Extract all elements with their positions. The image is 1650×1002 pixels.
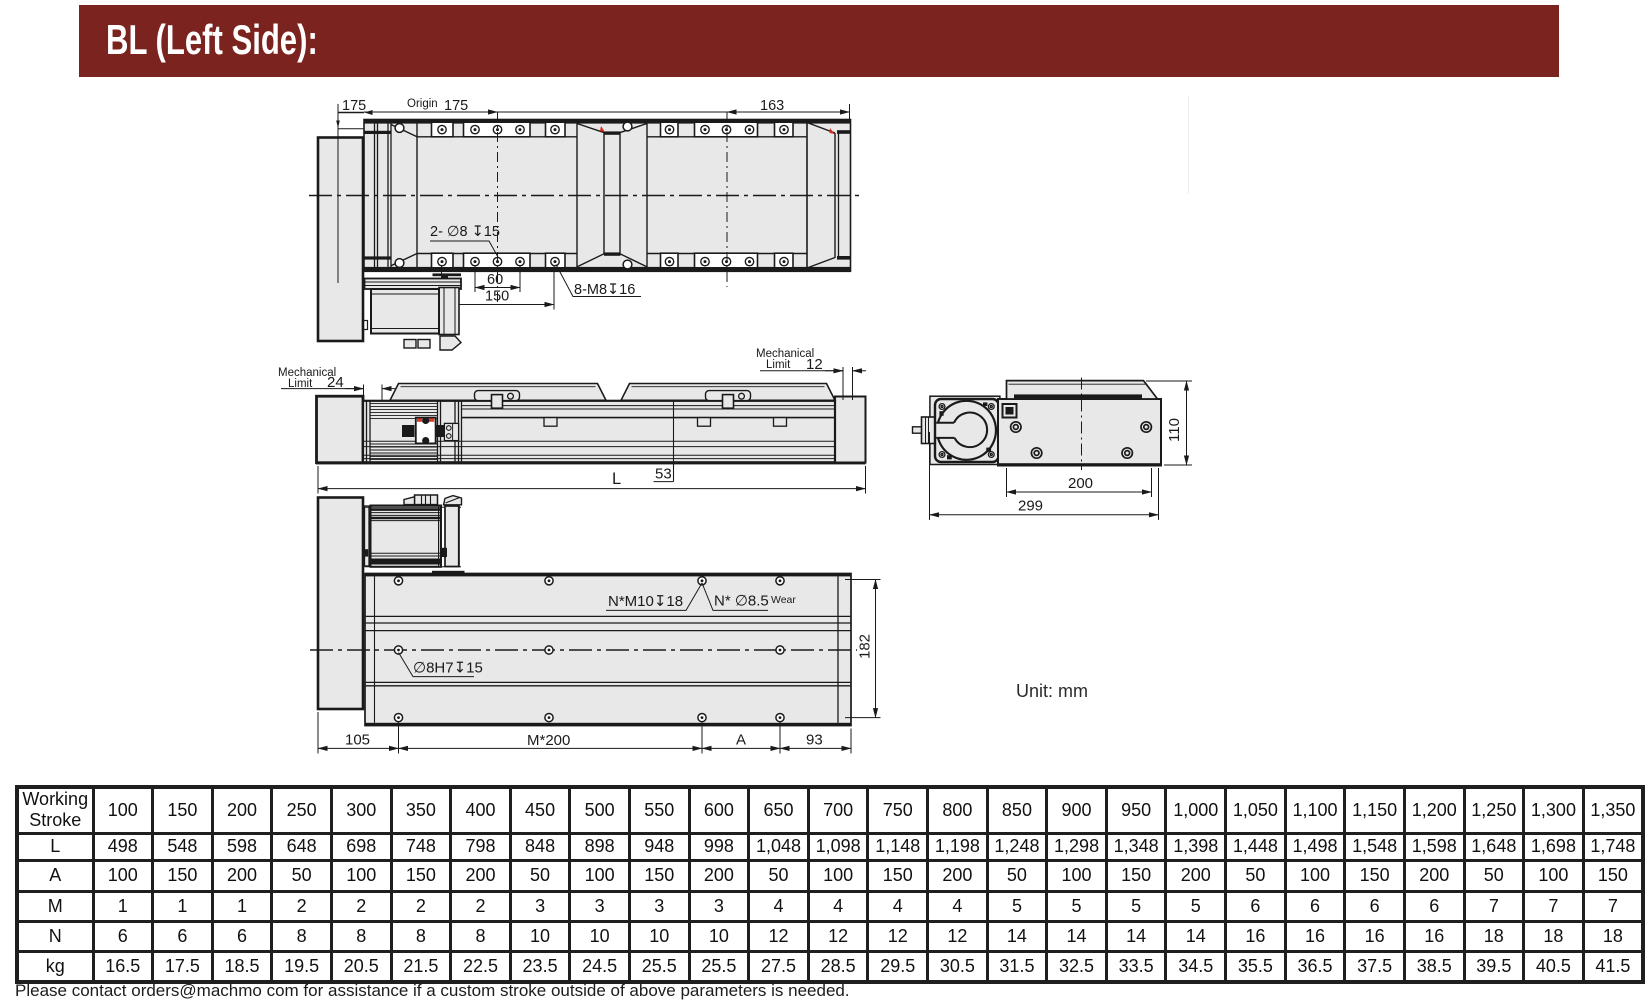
svg-text:L: L: [612, 470, 621, 488]
svg-text:150: 150: [485, 289, 509, 305]
svg-text:∅8H7↧15: ∅8H7↧15: [413, 660, 483, 677]
svg-text:2- ∅8 ↧15: 2- ∅8 ↧15: [430, 224, 500, 240]
svg-text:M*200: M*200: [527, 732, 570, 749]
svg-text:163: 163: [760, 98, 784, 114]
svg-text:Limit: Limit: [766, 359, 791, 371]
svg-text:N*M10↧18: N*M10↧18: [608, 593, 683, 610]
svg-text:182: 182: [857, 634, 874, 659]
svg-text:110: 110: [1166, 418, 1183, 442]
svg-text:200: 200: [1068, 475, 1093, 492]
svg-text:Wear: Wear: [771, 594, 796, 606]
svg-text:93: 93: [806, 732, 823, 749]
svg-text:8-M8↧16: 8-M8↧16: [574, 282, 635, 298]
svg-text:Origin: Origin: [407, 98, 438, 110]
svg-text:105: 105: [345, 732, 370, 749]
svg-text:299: 299: [1018, 498, 1043, 515]
svg-text:60: 60: [487, 272, 503, 288]
svg-text:175: 175: [342, 98, 366, 114]
svg-text:N* ∅8.5: N* ∅8.5: [714, 593, 769, 610]
svg-text:175: 175: [444, 98, 468, 114]
svg-text:A: A: [736, 732, 746, 749]
svg-text:53: 53: [655, 466, 672, 483]
